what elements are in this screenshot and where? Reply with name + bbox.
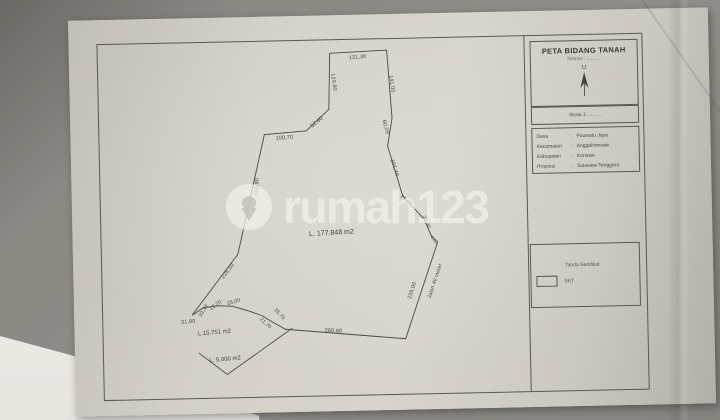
measurement-tip: 31,90 (181, 319, 196, 325)
parcel-area-label-middle: L.15.751 m2 (198, 328, 231, 337)
measurement-road-edge: 235,00 (407, 281, 418, 299)
measurement-diagonal: 228,50 (221, 263, 236, 280)
measurement-south-west-3: 25,00 (227, 298, 242, 307)
measurement-east-5: 8,00 (429, 235, 438, 245)
parcel-area-label-bottom: L. 5.000 m2 (209, 355, 241, 364)
measurement-east-3: 71,60 (398, 194, 413, 207)
measurement-west: 206,90 (255, 178, 261, 196)
map-drawing: PETA BIDANG TANAH Nomor : .......... U S… (0, 0, 720, 420)
measurement-south: 260,60 (325, 328, 343, 334)
measurement-upper-right: 141,00 (387, 75, 395, 93)
measurement-top: 121,30 (349, 54, 367, 61)
measurement-shoulder: 100,70 (275, 135, 293, 142)
measurement-south-west-4: 12,70 (209, 300, 223, 312)
measurement-step: 52,60 (310, 116, 325, 129)
parcel-area-label-main: L. 177.848 m2 (309, 229, 354, 238)
photo-of-land-parcel-map: PETA BIDANG TANAH Nomor : .......... U S… (0, 0, 720, 420)
measurement-east-2: 101,40 (389, 159, 400, 177)
measurement-south-west-5: 32,30 (198, 304, 209, 318)
measurement-east-1: 60,09 (381, 119, 390, 134)
measurement-upper-left: 129,80 (329, 73, 337, 91)
measurement-labels: 121,30129,80141,0052,60100,70206,9060,09… (0, 0, 720, 420)
measurement-south-west-2: 25,70 (273, 308, 286, 322)
measurement-south-west-1: 21,70 (259, 317, 272, 330)
measurement-east-4: 36,30 (421, 215, 431, 230)
